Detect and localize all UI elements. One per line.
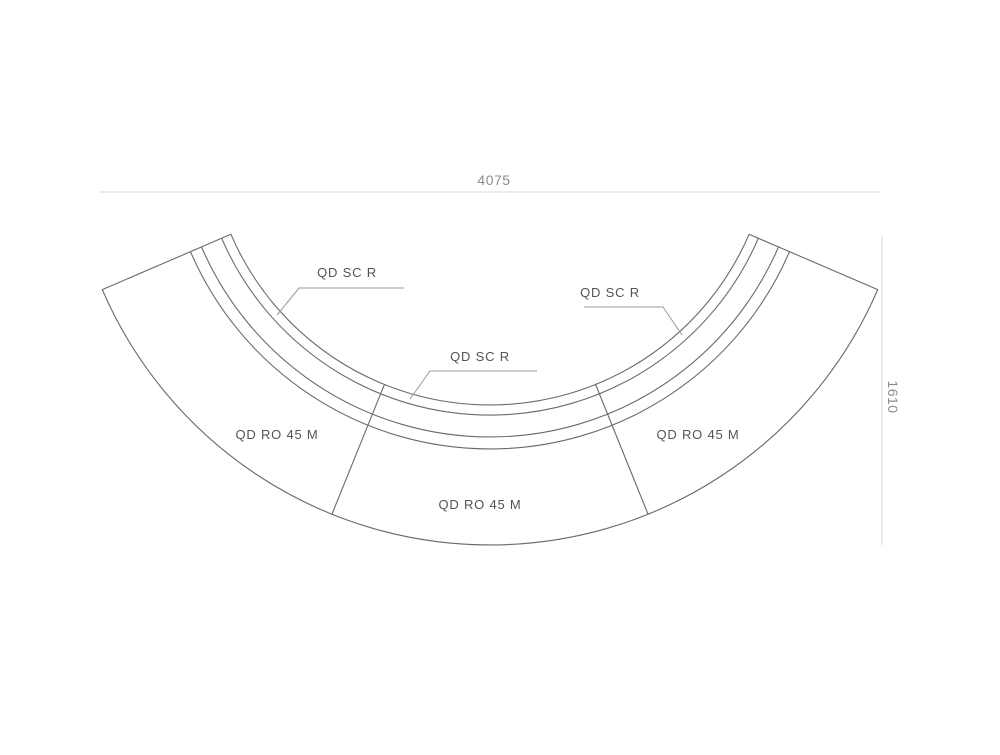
technical-drawing (0, 0, 1000, 755)
height-dimension-value: 1610 (885, 380, 901, 413)
screen-label-middle: QD SC R (450, 349, 510, 364)
drawing-canvas: 4075 1610 QD SC R QD SC R QD SC R QD RO … (0, 0, 1000, 755)
right-screen-leader-line (584, 307, 682, 335)
desk-inner-accent-arc (202, 247, 779, 437)
middle-screen-leader-line (410, 371, 537, 399)
left-module-divider-line (332, 385, 385, 515)
screen-label-left: QD SC R (317, 265, 377, 280)
module-label-left: QD RO 45 M (235, 427, 318, 442)
right-module-divider-line (596, 385, 649, 515)
screen-label-right: QD SC R (580, 285, 640, 300)
module-label-right: QD RO 45 M (656, 427, 739, 442)
screen-outer-arc (222, 238, 759, 415)
left-screen-leader-line (277, 288, 404, 315)
module-label-middle: QD RO 45 M (438, 497, 521, 512)
right-end-cap-line (749, 234, 878, 289)
left-end-cap-line (102, 234, 231, 289)
width-dimension-value: 4075 (477, 172, 510, 188)
